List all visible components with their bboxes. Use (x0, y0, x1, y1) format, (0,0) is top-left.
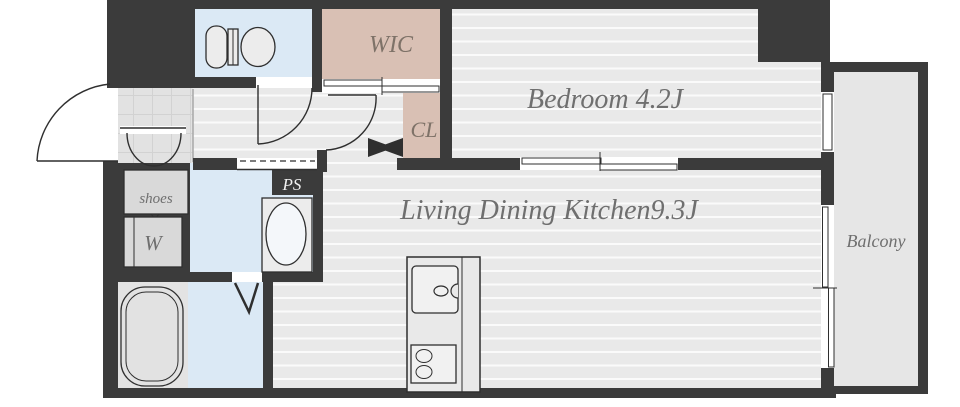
entrance-door-arc (37, 84, 110, 161)
wic-label: WIC (369, 32, 414, 58)
bedroom-window (821, 92, 834, 152)
washer-label: W (144, 231, 164, 255)
cl-label: CL (411, 117, 438, 142)
bathroom-floor (188, 282, 263, 388)
kitchen-stove (411, 345, 456, 383)
balcony-floor (832, 72, 918, 386)
washbasin-icon (262, 198, 312, 272)
bedroom-floor-right (758, 62, 821, 158)
bathtub-icon (121, 287, 183, 386)
entrance-door (37, 84, 118, 161)
bedroom-label: Bedroom 4.2J (527, 84, 685, 115)
ps-label: PS (282, 175, 302, 194)
ldk-floor-strip (273, 282, 323, 388)
balcony-label: Balcony (847, 231, 906, 251)
entrance-tile (118, 88, 193, 163)
washroom-sliding-door (237, 158, 317, 170)
floorplan: WIC CL Bedroom 4.2J Living Dining Kitche… (0, 0, 960, 407)
wic-sliding-door (322, 77, 440, 95)
ldk-label: Living Dining Kitchen9.3J (399, 195, 699, 226)
floorplan-svg: WIC CL Bedroom 4.2J Living Dining Kitche… (0, 0, 960, 407)
shoes-label: shoes (139, 191, 172, 207)
kitchen-counter-icon (407, 257, 480, 392)
